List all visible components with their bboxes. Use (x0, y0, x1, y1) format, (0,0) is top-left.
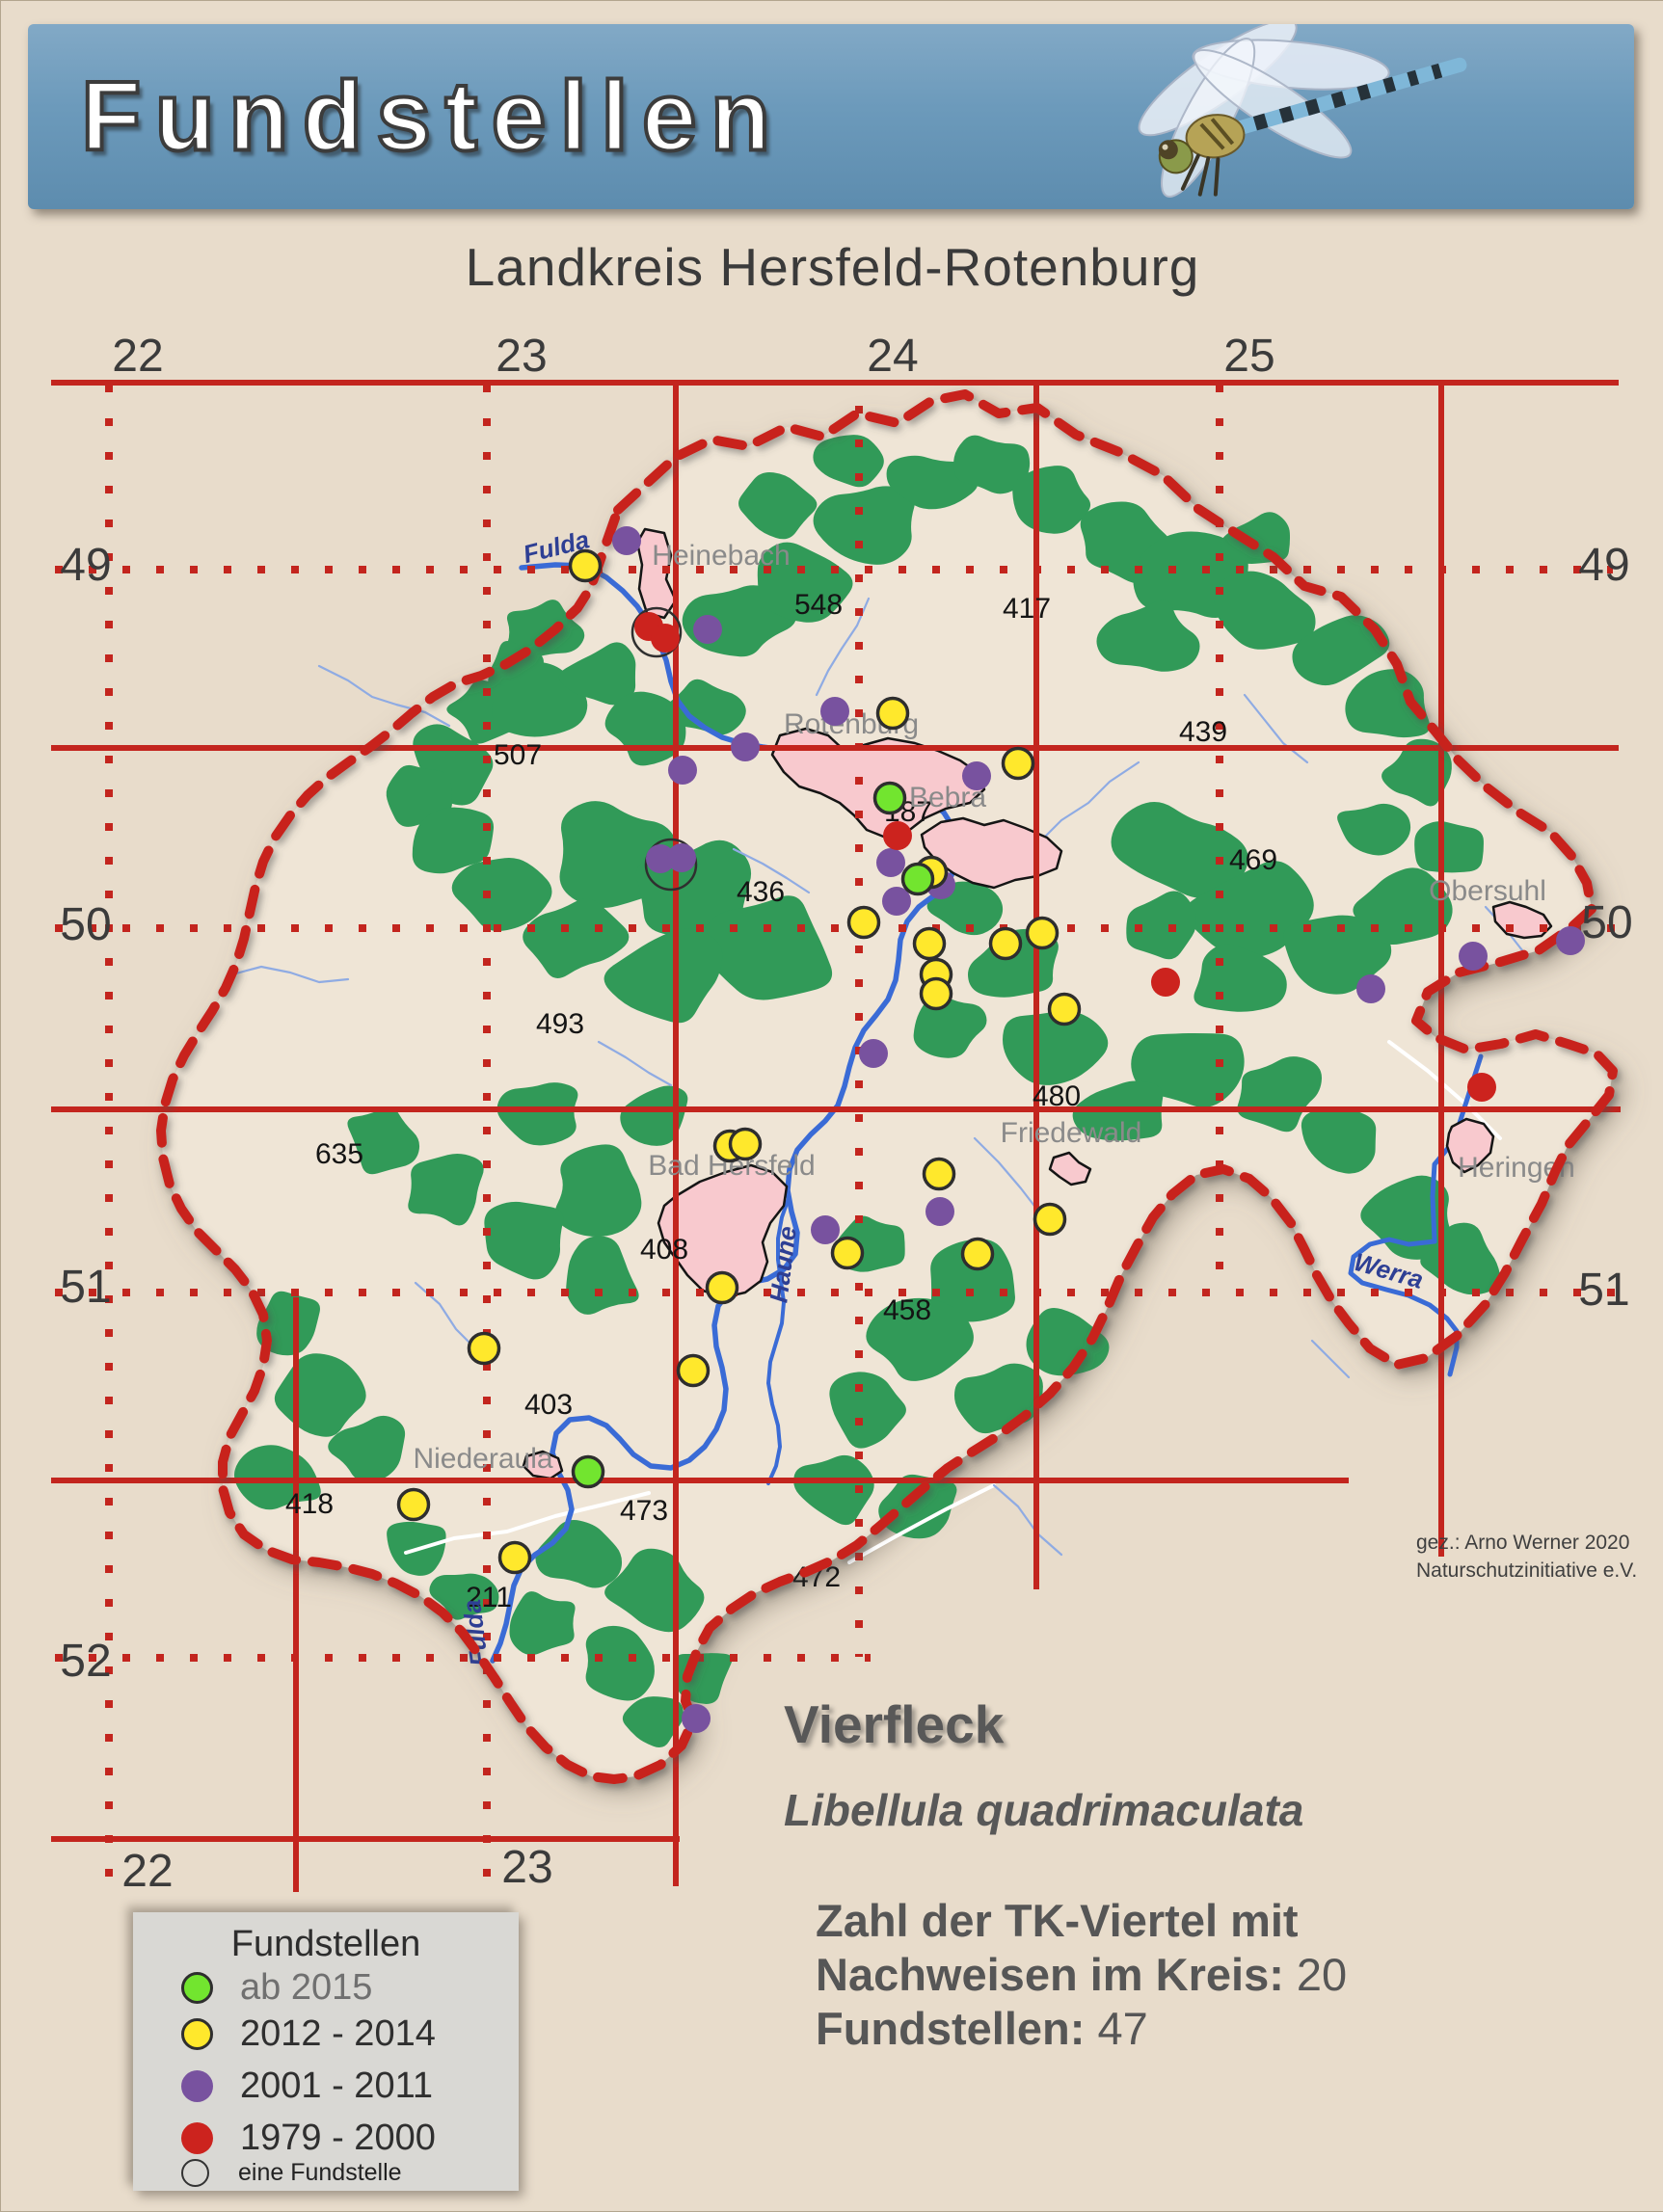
site-marker-2001 (962, 761, 991, 790)
axis-label-left: 49 (60, 540, 111, 591)
site-marker-2012 (399, 1490, 429, 1520)
axis-label-top: 22 (112, 331, 163, 382)
site-marker-2012 (731, 1130, 761, 1159)
site-marker-2001 (668, 756, 697, 785)
marker-2001-icon (181, 2070, 213, 2102)
tk-sheet-number: 439 (1179, 716, 1227, 748)
attribution-org: Naturschutzinitiative e.V. (1416, 1559, 1637, 1583)
site-marker-2012 (925, 1159, 954, 1189)
page-title: Fundstellen (81, 61, 784, 173)
page: 5484175074391874364694934804086354034584… (0, 0, 1663, 2212)
marker-1979-icon (181, 2122, 213, 2154)
city-label: Friedewald (1001, 1117, 1142, 1149)
legend-item-label: 2001 - 2011 (240, 2065, 433, 2107)
axis-label-top: 23 (496, 331, 547, 382)
sites-count-label: Fundstellen: (816, 2003, 1085, 2054)
site-marker-2012 (500, 1543, 530, 1573)
axis-label-left: 52 (60, 1636, 111, 1687)
tk-sheet-number: 417 (1003, 593, 1051, 625)
site-marker-2012 (708, 1273, 738, 1303)
forest-patch (1220, 512, 1290, 564)
site-marker-2012 (922, 979, 952, 1009)
dragonfly-icon (1017, 24, 1518, 217)
tk-sheet-number: 548 (794, 589, 843, 621)
axis-label-bottom: 22 (121, 1846, 173, 1897)
sites-count-line: Fundstellen: 47 (816, 2002, 1148, 2055)
tk-sheet-number: 403 (524, 1389, 573, 1421)
tk-sheet-number: 473 (620, 1495, 668, 1527)
district-map: 5484175074391874364694934804086354034584… (1, 1, 1663, 2211)
legend-box: Fundstellen ab 2015 2012 - 2014 2001 - 2… (133, 1912, 519, 2191)
site-marker-2001 (820, 697, 849, 726)
legend-title: Fundstellen (133, 1924, 519, 1965)
site-marker-2012 (1035, 1205, 1065, 1235)
map-subtitle: Landkreis Hersfeld-Rotenburg (1, 236, 1663, 298)
site-marker-ab2015 (574, 1457, 604, 1487)
tk-sheet-number: 635 (315, 1138, 363, 1170)
axis-label-bottom: 23 (501, 1842, 552, 1893)
site-marker-2001 (682, 1704, 711, 1733)
tk-sheet-number: 469 (1229, 844, 1277, 876)
site-marker-2012 (878, 699, 908, 729)
site-marker-2001 (876, 848, 905, 877)
site-marker-2012 (833, 1239, 863, 1268)
legend-item-2001: 2001 - 2011 (181, 2066, 433, 2105)
axis-label-left: 51 (60, 1262, 111, 1313)
site-marker-1979 (883, 821, 912, 850)
header-banner: Fundstellen (28, 24, 1634, 209)
waterway (1312, 1341, 1349, 1377)
site-marker-2012 (1050, 995, 1080, 1025)
site-marker-2012 (571, 551, 601, 581)
site-marker-1979 (1467, 1073, 1496, 1102)
tk-sheet-number: 418 (285, 1488, 334, 1520)
tk-sheet-number: 507 (494, 739, 542, 771)
axis-label-top: 24 (867, 331, 918, 382)
legend-item-label: ab 2015 (240, 1967, 372, 2009)
site-marker-2001 (925, 1197, 954, 1226)
site-marker-2001 (1356, 974, 1385, 1003)
waterway (994, 1485, 1061, 1555)
site-marker-2012 (991, 929, 1021, 959)
site-marker-2012 (469, 1334, 499, 1364)
tk-sheet-number: 436 (737, 876, 785, 908)
tk-count-line2: Nachweisen im Kreis: 20 (816, 1948, 1347, 2001)
site-marker-2012 (1028, 919, 1058, 948)
tk-count-label: Nachweisen im Kreis: (816, 1949, 1284, 2000)
site-marker-2012 (1004, 749, 1033, 779)
tk-sheet-number: 493 (536, 1008, 584, 1040)
axis-label-top: 25 (1223, 331, 1274, 382)
axis-label-right: 49 (1578, 540, 1629, 591)
legend-note-label: eine Fundstelle (238, 2159, 402, 2187)
single-site-circle-icon (181, 2159, 209, 2187)
site-marker-2001 (667, 843, 696, 872)
axis-label-left: 50 (60, 899, 111, 950)
site-marker-2001 (731, 733, 760, 761)
legend-item-ab2015: ab 2015 (181, 1968, 372, 2007)
tk-sheet-number: 480 (1033, 1080, 1081, 1112)
site-marker-ab2015 (875, 784, 905, 813)
tk-count-line1: Zahl der TK-Viertel mit (816, 1894, 1299, 1947)
species-latin-name: Libellula quadrimaculata (784, 1784, 1303, 1836)
tk-count-value: 20 (1297, 1949, 1347, 2000)
site-marker-2012 (849, 908, 879, 938)
site-marker-2001 (811, 1215, 840, 1244)
site-marker-1979 (1151, 968, 1180, 997)
city-label: Heinebach (652, 540, 790, 572)
legend-item-1979: 1979 - 2000 (181, 2119, 436, 2157)
site-marker-ab2015 (903, 865, 933, 894)
axis-label-right: 50 (1581, 897, 1632, 948)
site-marker-2012 (963, 1239, 993, 1269)
site-marker-2012 (679, 1356, 709, 1386)
site-marker-2001 (859, 1039, 888, 1068)
city-label: Obersuhl (1429, 875, 1546, 907)
tk-sheet-number: 458 (883, 1294, 931, 1326)
sites-count-value: 47 (1097, 2003, 1147, 2054)
site-marker-2001 (693, 615, 722, 644)
site-marker-2001 (612, 526, 641, 555)
site-marker-2001 (1459, 942, 1488, 971)
site-marker-1979 (651, 624, 680, 653)
attribution-author: gez.: Arno Werner 2020 (1416, 1532, 1629, 1555)
legend-item-2012: 2012 - 2014 (181, 2014, 436, 2053)
tk-sheet-number: 408 (640, 1234, 688, 1266)
forest-patch (1414, 821, 1484, 872)
site-marker-2012 (915, 929, 945, 959)
marker-ab2015-icon (181, 1972, 213, 2004)
species-common-name: Vierfleck (784, 1693, 1004, 1755)
legend-item-label: 2012 - 2014 (240, 2013, 436, 2055)
legend-note-row: eine Fundstelle (181, 2153, 402, 2192)
city-label: Niederaula (413, 1443, 552, 1475)
marker-2012-icon (181, 2018, 213, 2050)
axis-label-right: 51 (1578, 1265, 1629, 1316)
